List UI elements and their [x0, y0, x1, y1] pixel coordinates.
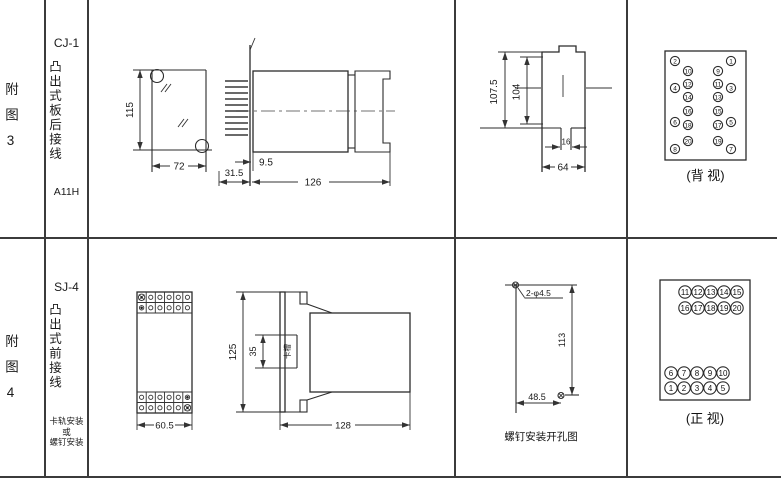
- terminal-pin: 16: [679, 302, 691, 314]
- svg-text:4: 4: [708, 384, 713, 393]
- terminal-cell-circle: [149, 406, 153, 410]
- screw-symbol: [138, 294, 144, 300]
- screw-symbol: [184, 405, 190, 411]
- terminal-pin: 11: [679, 286, 691, 298]
- svg-text:6: 6: [673, 119, 677, 126]
- svg-text:3: 3: [695, 384, 700, 393]
- center-marks: [515, 75, 612, 97]
- terminal-cell-circle: [149, 306, 153, 310]
- terminal-cell-circle: [167, 295, 171, 299]
- mount-note-line1: 卡轨安装: [45, 416, 88, 427]
- svg-text:10: 10: [719, 369, 728, 378]
- dim-126: 126: [305, 178, 322, 189]
- terminal-pin: 6: [670, 117, 679, 126]
- figure-label-4: 附图4: [0, 334, 45, 412]
- svg-text:17: 17: [714, 122, 722, 129]
- sj4-front-view: 60.5: [137, 292, 192, 432]
- dim-113: 113: [557, 333, 567, 347]
- terminal-pin: 1: [726, 56, 735, 65]
- svg-text:20: 20: [684, 138, 692, 145]
- svg-text:5: 5: [721, 384, 726, 393]
- dim-60-5: 60.5: [155, 421, 174, 432]
- hole-spec: 2-φ4.5: [526, 288, 551, 298]
- terminal-pin: 4: [704, 382, 716, 394]
- terminal-cell-circle: [167, 306, 171, 310]
- terminal-pins-comb: [225, 81, 248, 135]
- terminal-pin: 4: [670, 83, 679, 92]
- mount-type-sj4: 凸出式前接线: [45, 303, 88, 390]
- svg-text:10: 10: [684, 68, 692, 75]
- terminal-pin: 14: [718, 286, 730, 298]
- terminal-cell-circle: [158, 306, 162, 310]
- terminal-cell-circle: [176, 406, 180, 410]
- model-cj1: CJ-1: [45, 36, 88, 50]
- terminal-pin: 2: [678, 382, 690, 394]
- rail-clip-bottom: [300, 400, 307, 412]
- svg-text:4: 4: [673, 85, 677, 92]
- terminal-cell-circle: [176, 295, 180, 299]
- svg-text:1: 1: [669, 384, 674, 393]
- svg-text:16: 16: [681, 304, 690, 313]
- terminal-pin: 7: [678, 367, 690, 379]
- cj1-plate-view: 115 72: [125, 70, 212, 173]
- terminal-pin: 18: [705, 302, 717, 314]
- svg-text:2: 2: [682, 384, 687, 393]
- code-a11h: A11H: [45, 186, 88, 198]
- terminal-pin: 10: [717, 367, 729, 379]
- terminal-pin: 3: [726, 83, 735, 92]
- terminal-cell-circle: [167, 395, 171, 399]
- terminal-cell-circle: [149, 295, 153, 299]
- svg-text:9: 9: [708, 369, 713, 378]
- terminal-pin: 14: [683, 92, 692, 101]
- svg-text:19: 19: [720, 304, 729, 313]
- dim-35: 35: [248, 346, 258, 356]
- svg-text:7: 7: [729, 146, 733, 153]
- terminal-pin: 5: [726, 117, 735, 126]
- hole-caption: 螺钉安装开孔图: [504, 430, 578, 443]
- slot-label: 卡槽: [282, 344, 292, 359]
- svg-text:16: 16: [684, 108, 692, 115]
- mount-note-line3: 螺钉安装: [45, 437, 88, 448]
- terminal-pin: 13: [705, 286, 717, 298]
- terminal-pin: 5: [717, 382, 729, 394]
- terminal-cell-circle: [185, 295, 189, 299]
- svg-text:18: 18: [684, 122, 692, 129]
- relay-body: [253, 71, 348, 152]
- svg-text:11: 11: [681, 288, 690, 297]
- terminal-cell-circle: [158, 295, 162, 299]
- dim-48-5: 48.5: [528, 392, 546, 402]
- svg-text:13: 13: [707, 288, 716, 297]
- terminal-pin: 12: [692, 286, 704, 298]
- terminal-pin: 9: [704, 367, 716, 379]
- relay-body: [310, 313, 410, 392]
- terminal-pin: 12: [683, 79, 692, 88]
- terminal-pin: 19: [718, 302, 730, 314]
- svg-text:20: 20: [733, 304, 742, 313]
- terminal-cell-circle: [167, 406, 171, 410]
- cutout-outline: [542, 46, 585, 172]
- svg-text:14: 14: [720, 288, 729, 297]
- terminal-pin: 15: [713, 106, 722, 115]
- svg-text:15: 15: [733, 288, 742, 297]
- svg-text:12: 12: [684, 81, 692, 88]
- svg-text:18: 18: [707, 304, 716, 313]
- terminal-pin: 15: [731, 286, 743, 298]
- terminal-cell-circle: [140, 395, 144, 399]
- screw-symbol: [139, 306, 143, 310]
- mount-note-line2: 或: [45, 427, 88, 438]
- terminal-grid: [137, 292, 192, 413]
- dim-16: 16: [562, 138, 571, 147]
- svg-text:14: 14: [684, 94, 692, 101]
- dim-128: 128: [335, 421, 351, 432]
- svg-text:1: 1: [729, 58, 733, 65]
- cj1-dimension-drawing: 115 72 9.5 31.5 126: [88, 0, 455, 237]
- sj4-side-view: 卡槽 35 125 128: [228, 292, 410, 432]
- terminal-pin: 19: [713, 136, 722, 145]
- cj1-cutout-drawing: 107.5 104 16 64: [455, 0, 627, 237]
- dim-125: 125: [228, 343, 239, 360]
- svg-text:7: 7: [682, 369, 687, 378]
- terminal-pin: 16: [683, 106, 692, 115]
- dim-72: 72: [173, 162, 185, 173]
- terminal-pin: 9: [713, 66, 722, 75]
- sj4-terminal-layout: 1112131415161718192067891012345(正 视): [627, 237, 781, 482]
- terminal-outline: [665, 51, 746, 160]
- terminal-pin: 1: [665, 382, 677, 394]
- terminal-pin: 7: [726, 144, 735, 153]
- terminal-pin: 10: [683, 66, 692, 75]
- terminal-pin: 18: [683, 120, 692, 129]
- terminal-cell-circle: [185, 306, 189, 310]
- svg-text:8: 8: [695, 369, 700, 378]
- svg-text:19: 19: [714, 138, 722, 145]
- mount-type-cj1: 凸出式板后接线: [45, 60, 88, 162]
- svg-text:13: 13: [714, 94, 722, 101]
- dim-107-5: 107.5: [489, 79, 500, 104]
- rail-clip-top: [300, 292, 307, 304]
- dim-104: 104: [512, 83, 523, 100]
- screw-symbol: [185, 395, 189, 399]
- dim-31-5: 31.5: [225, 168, 244, 179]
- svg-text:17: 17: [694, 304, 703, 313]
- rear-cap: [355, 71, 390, 152]
- svg-text:5: 5: [729, 119, 733, 126]
- svg-text:8: 8: [673, 146, 677, 153]
- svg-text:9: 9: [716, 68, 720, 75]
- mount-notes: 卡轨安装 或 螺钉安装: [45, 416, 88, 448]
- figure-label-3: 附图3: [0, 82, 45, 160]
- terminal-cell-circle: [158, 395, 162, 399]
- terminal-cell-circle: [149, 395, 153, 399]
- dim-64: 64: [557, 163, 569, 174]
- cj1-side-view: 9.5 31.5 126: [219, 38, 395, 189]
- sj4-dimension-drawing: 60.5 卡槽 35 125 128: [88, 237, 455, 482]
- back-view-caption: (背 视): [686, 168, 724, 183]
- svg-text:15: 15: [714, 108, 722, 115]
- terminal-cell-circle: [176, 306, 180, 310]
- svg-text:3: 3: [729, 85, 733, 92]
- svg-text:6: 6: [669, 369, 674, 378]
- terminal-pin: 17: [713, 120, 722, 129]
- terminal-pin: 11: [713, 79, 722, 88]
- dim-9-5: 9.5: [259, 158, 273, 169]
- svg-text:2: 2: [673, 58, 677, 65]
- hatch-marks: [161, 84, 188, 127]
- terminal-cell-circle: [158, 406, 162, 410]
- terminal-pin: 2: [670, 56, 679, 65]
- terminal-pin: 20: [731, 302, 743, 314]
- terminal-pin: 17: [692, 302, 704, 314]
- terminal-pin: 8: [670, 144, 679, 153]
- terminal-pin: 13: [713, 92, 722, 101]
- terminal-pin: 8: [691, 367, 703, 379]
- dim-115: 115: [125, 102, 136, 118]
- terminal-pin: 20: [683, 136, 692, 145]
- terminal-pin: 6: [665, 367, 677, 379]
- terminal-pin: 3: [691, 382, 703, 394]
- terminal-cell-circle: [140, 406, 144, 410]
- svg-text:12: 12: [694, 288, 703, 297]
- svg-text:11: 11: [715, 81, 722, 88]
- cj1-terminal-layout: 2110912114314131615651817201987(背 视): [627, 0, 781, 237]
- front-view-caption: (正 视): [686, 411, 724, 426]
- terminal-cell-circle: [176, 395, 180, 399]
- model-sj4: SJ-4: [45, 280, 88, 294]
- hole-bottom: [558, 393, 564, 399]
- sj4-hole-drawing: 2-φ4.5 113 48.5 螺钉安装开孔图: [455, 237, 627, 482]
